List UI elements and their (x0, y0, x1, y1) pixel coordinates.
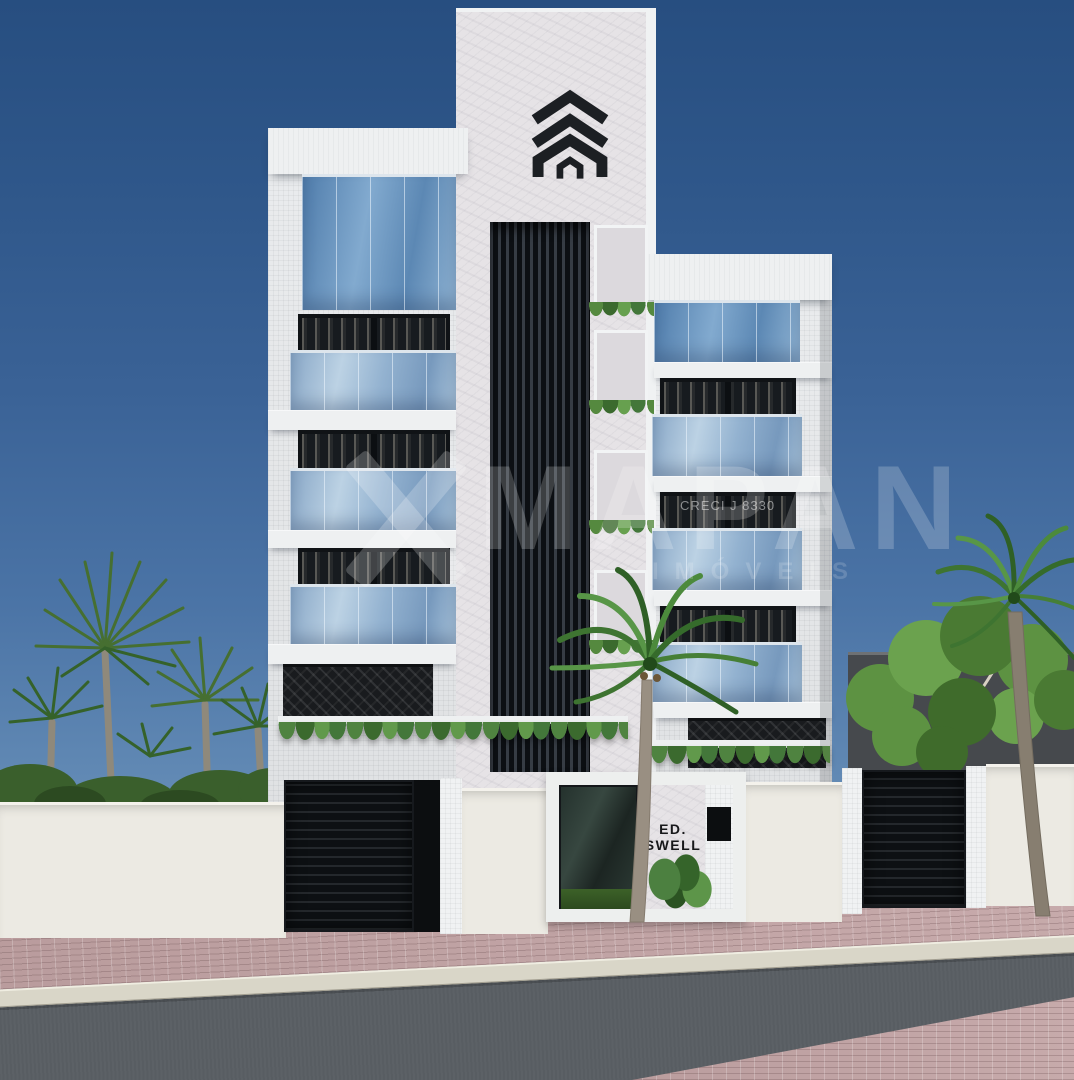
right-palm-tree (934, 516, 1074, 916)
watermark-subtitle-text: IMÓVEIS (652, 560, 864, 584)
watermark-license-text: CRECI J 8330 (680, 498, 775, 513)
center-palm-tree (552, 570, 756, 922)
watermark-logo-x-icon (346, 458, 466, 580)
render-canvas: ED. SWELL (0, 0, 1074, 1080)
